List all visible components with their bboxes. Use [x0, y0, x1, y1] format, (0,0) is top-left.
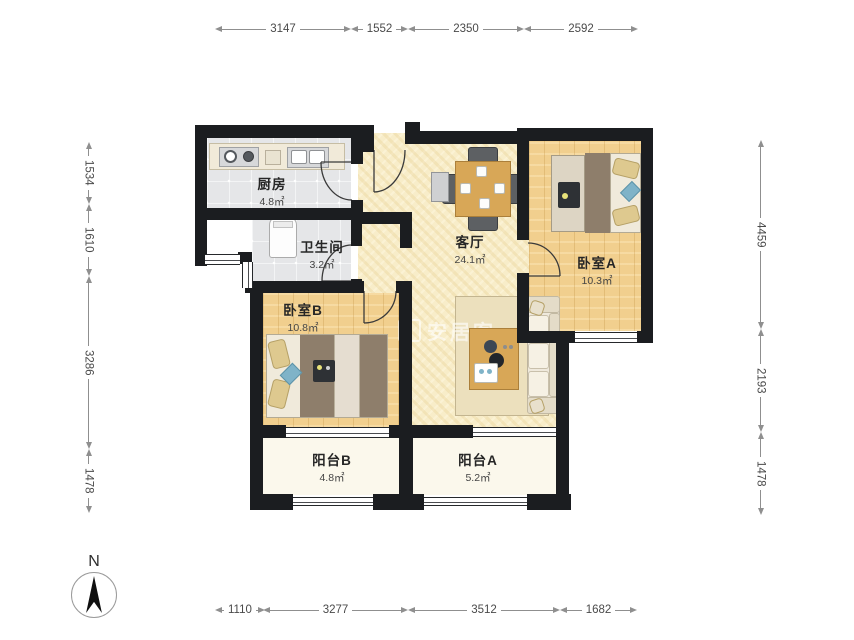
window	[205, 254, 240, 265]
wall	[517, 331, 575, 343]
wall	[641, 128, 653, 343]
room-label-bedroom-a: 卧室A 10.3㎡	[547, 252, 647, 288]
window	[575, 332, 637, 343]
room-label-balcony-b: 阳台B 4.8㎡	[282, 449, 382, 485]
window	[242, 262, 253, 288]
wall	[195, 125, 207, 266]
room-label-bathroom: 卫生间 3.2㎡	[272, 236, 372, 272]
wall	[637, 331, 653, 343]
wall	[412, 425, 473, 438]
balcony-slider	[473, 427, 556, 437]
kitchen-door-icon	[321, 162, 352, 200]
entry-door-icon	[374, 150, 405, 192]
wall	[250, 494, 293, 510]
room-label-living: 客厅 24.1㎡	[420, 231, 520, 267]
wall	[195, 125, 363, 138]
wall	[400, 212, 412, 248]
balcony-glass	[424, 497, 527, 506]
room-label-balcony-a: 阳台A 5.2㎡	[428, 449, 528, 485]
wall	[405, 131, 520, 144]
floor-plan-canvas: 安居客	[0, 0, 854, 640]
window	[286, 427, 389, 438]
wall	[399, 281, 412, 438]
wall	[517, 140, 529, 240]
bedroom-b-door-icon	[364, 291, 396, 323]
wall	[351, 136, 363, 164]
wall	[399, 427, 413, 510]
wall	[195, 208, 363, 220]
wall	[517, 128, 653, 141]
room-label-bedroom-b: 卧室B 10.8㎡	[253, 299, 353, 335]
balcony-glass	[293, 497, 373, 506]
wall	[556, 331, 569, 510]
door-arcs	[0, 0, 854, 640]
room-label-kitchen: 厨房 4.8㎡	[222, 173, 322, 209]
wall	[250, 425, 286, 438]
